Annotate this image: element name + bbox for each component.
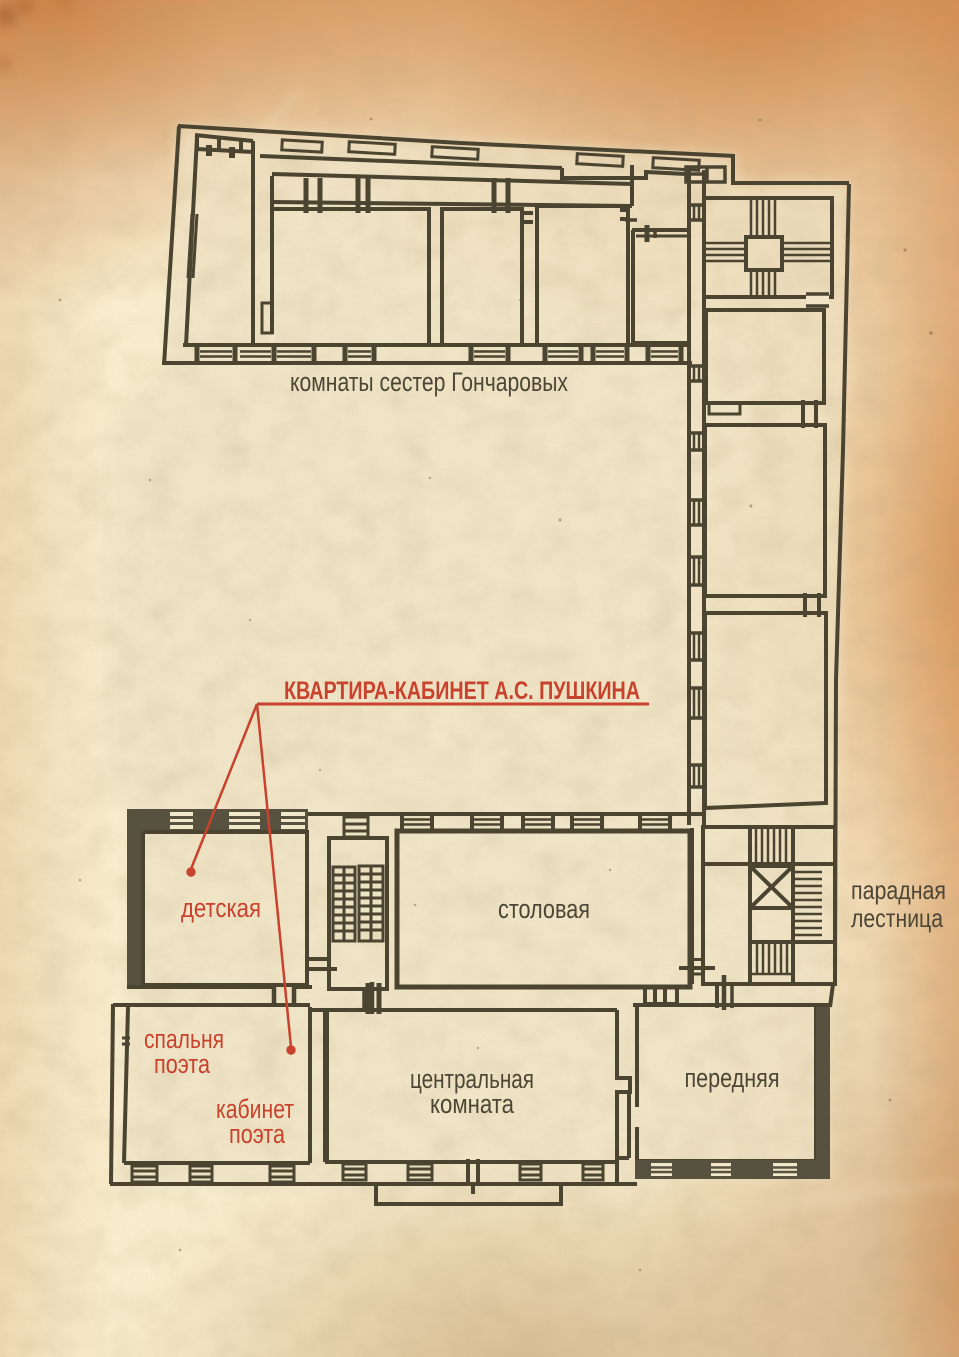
svg-text:детская: детская xyxy=(181,893,261,923)
svg-text:комнаты сестер Гончаровых: комнаты сестер Гончаровых xyxy=(290,367,568,397)
svg-text:поэта: поэта xyxy=(154,1049,211,1079)
svg-text:поэта: поэта xyxy=(229,1119,286,1149)
svg-text:КВАРТИРА-КАБИНЕТ А.С. ПУШКИНА: КВАРТИРА-КАБИНЕТ А.С. ПУШКИНА xyxy=(284,677,640,705)
svg-text:комната: комната xyxy=(430,1089,515,1119)
svg-text:лестница: лестница xyxy=(851,903,943,933)
svg-text:парадная: парадная xyxy=(851,875,946,905)
svg-text:столовая: столовая xyxy=(498,894,590,924)
svg-text:передняя: передняя xyxy=(685,1063,780,1093)
